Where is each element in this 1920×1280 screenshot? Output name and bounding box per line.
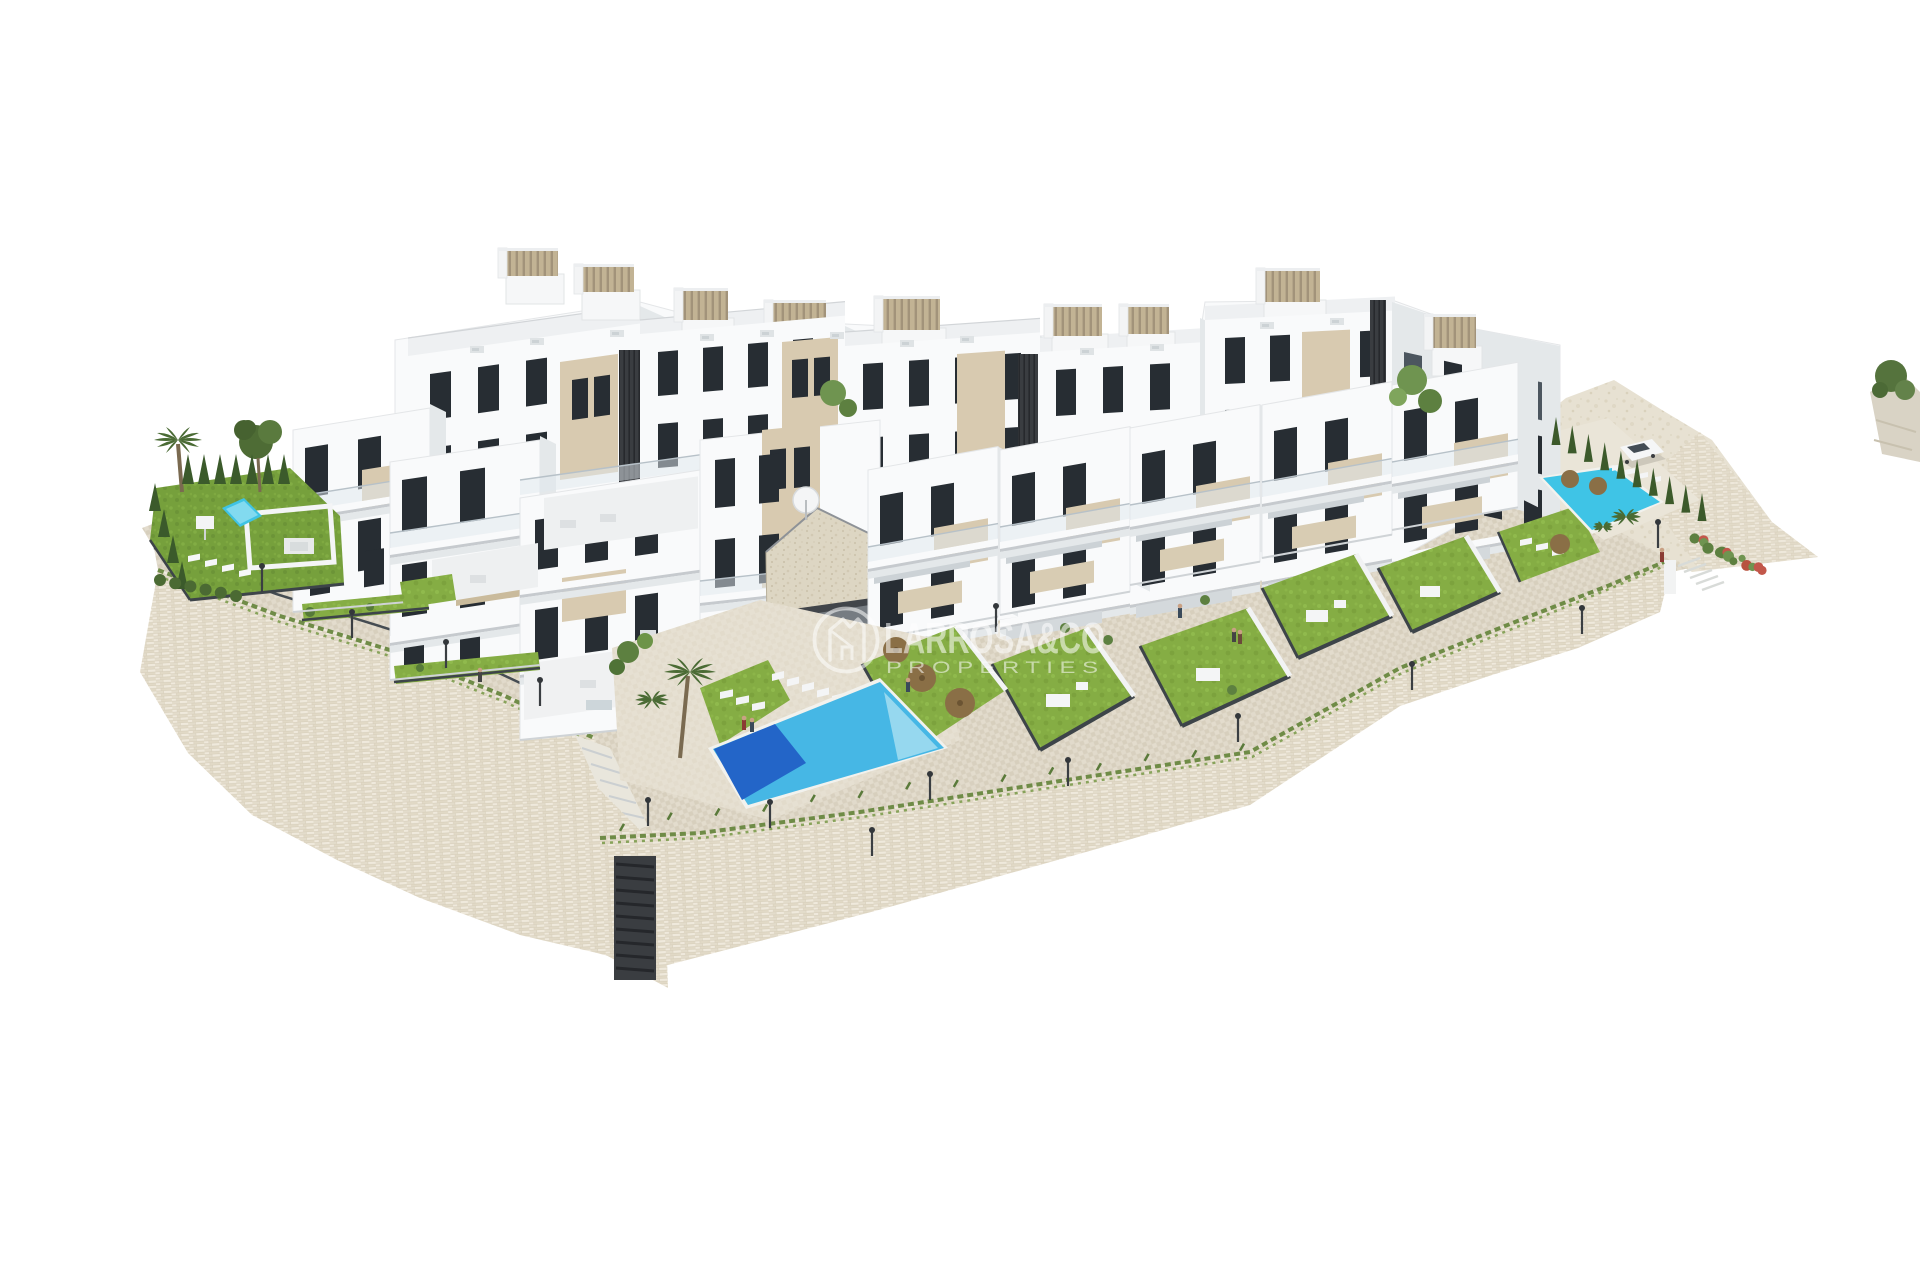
svg-text:LARROSA&CO: LARROSA&CO bbox=[884, 614, 1105, 663]
svg-text:P R O P E R T I E S: P R O P E R T I E S bbox=[886, 658, 1098, 677]
